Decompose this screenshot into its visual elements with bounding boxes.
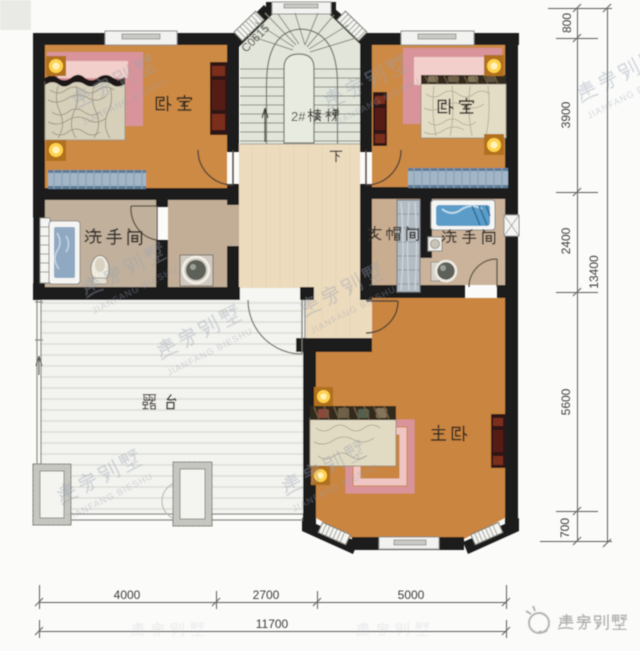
- svg-text:2700: 2700: [253, 588, 280, 602]
- svg-text:13400: 13400: [587, 255, 601, 289]
- svg-text:700: 700: [558, 518, 572, 538]
- svg-text:4000: 4000: [114, 588, 141, 602]
- svg-text:11700: 11700: [256, 617, 289, 631]
- svg-text:3900: 3900: [559, 101, 573, 128]
- svg-text:5000: 5000: [398, 588, 425, 602]
- svg-text:2#: 2#: [291, 109, 306, 124]
- svg-text:800: 800: [560, 13, 574, 33]
- svg-text:2400: 2400: [559, 227, 573, 254]
- svg-text:5600: 5600: [559, 388, 573, 415]
